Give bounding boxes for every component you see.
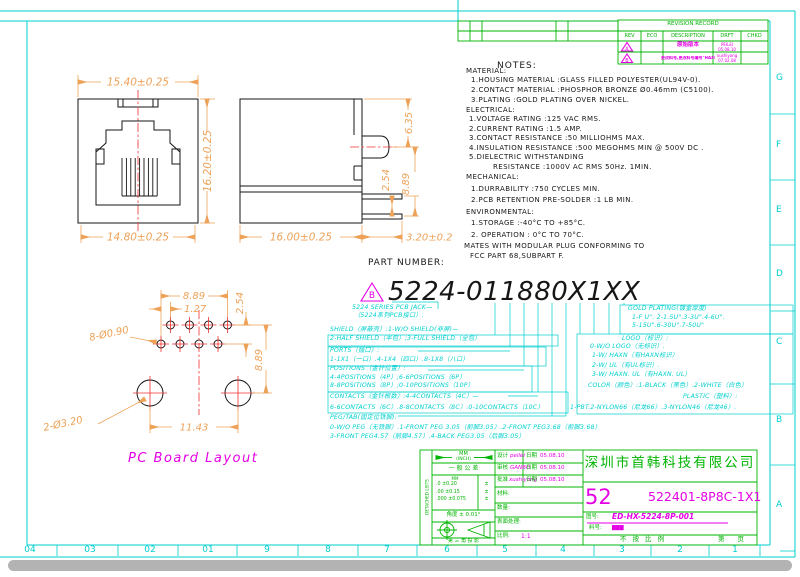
zone-col-03: 03 — [82, 546, 98, 555]
tb-company-name: 深圳市首韩科技有限公司 — [583, 457, 757, 471]
zone-col-04: 04 — [22, 546, 38, 555]
pn-breakdown-line: PEG/TAB(固定位铁脚): — [330, 415, 397, 421]
zone-col-1: 1 — [727, 546, 743, 555]
pn-breakdown-line: 5-15U".6-30U".7-50U" — [632, 323, 704, 329]
side-view-drawing — [240, 99, 402, 223]
notes-line: 2.CONTACT MATERIAL :PHOSPHOR BRONZE Ø0.4… — [471, 87, 714, 94]
pn-breakdown-line: 2-W/ UL（有UL标识）. — [592, 363, 660, 369]
dim-front-bottom: 14.80±0.25 — [107, 232, 170, 244]
notes-material-heading: MATERIAL: — [466, 68, 507, 75]
tb-material-label: 材料: — [497, 492, 510, 498]
dim-pcb-big-holes: 2-Ø3.20 — [42, 414, 84, 434]
zone-col-2: 2 — [672, 546, 688, 555]
rev-row-b-marker-letter: B — [625, 58, 629, 64]
dim-pcb-row: 2.54 — [235, 292, 246, 314]
dim-side-pitch: 2.54 — [381, 169, 392, 191]
notes-line: 2. OPERATION : 0°C TO 70°C. — [471, 232, 584, 239]
zone-row-f: F — [776, 141, 781, 150]
notes-line: 1.VOLTAGE RATING :125 VAC RMS. — [469, 116, 601, 123]
pn-breakdown-line: 3-FRONT PEG4.57（前脚4.57）.4-BACK PEG3.05（后… — [330, 434, 525, 440]
notes-line: 1.STORAGE :-40°C TO +85°C. — [471, 220, 585, 227]
dim-pcb-small-holes: 8-Ø0.90 — [88, 324, 130, 344]
revision-col-drft: DRFT — [713, 34, 741, 39]
rev-row-a-marker-letter: A — [625, 46, 629, 52]
revision-col-description: DESCRIPTION — [663, 34, 713, 39]
revision-row-b-date: 07.02.08 — [713, 59, 741, 63]
tb-scale-value: 1:1 — [521, 534, 531, 540]
pn-breakdown-line: LOGO（标识）: — [622, 336, 668, 342]
engineering-drawing-sheet: B A B — [0, 0, 800, 577]
tb-designed-name: peilei — [510, 454, 525, 460]
tb-tolerance-unit: MM — [434, 477, 476, 481]
dim-pcb-pitch: 1.27 — [184, 304, 207, 315]
pn-breakdown-line: 6-6CONTACTS（6C）.8-8CONTACTS（8C）.0-10CONT… — [330, 405, 544, 411]
tb-tolerance-row: .00 ±0.15 — [436, 491, 460, 496]
pn-breakdown-line: 5224 SERIES PCB JACK— — [352, 305, 433, 311]
pn-breakdown-line: （5224系列PCB接口）. — [354, 313, 424, 319]
revision-row-b-drafter: xushiyong — [713, 54, 741, 58]
pn-breakdown-line: GOLD PLATING(镀金厚度) — [628, 306, 707, 312]
tb-drawing-no-label: 图号: — [586, 515, 599, 521]
pn-breakdown-line: 1-F U". 2-1.5U".3-3U".4-6U". — [632, 315, 725, 321]
notes-line: MATES WITH MODULAR PLUG CONFORMING TO — [464, 243, 645, 250]
pn-breakdown-line: 1-1X1（一口）.4-1X4（四口）.8-1X8（八口） — [330, 357, 469, 363]
revision-row-a-drafter: PEILEI — [713, 43, 741, 47]
pn-breakdown-line: 8-8POSITIONS（8P）;0-10POSITIONS（10P） — [330, 383, 474, 389]
tb-approved-date: 05.08.10 — [540, 478, 565, 484]
tb-pm-mark: ± — [478, 483, 495, 488]
zone-col-7: 7 — [379, 546, 395, 555]
tb-size-code: 52 — [585, 487, 612, 508]
dim-side-width: 16.00±0.25 — [270, 232, 333, 244]
tb-material-no-label: 料号: — [589, 526, 602, 532]
title-block-strip-note: DETACHED LISTS — [425, 479, 430, 515]
pn-breakdown-line: 4-4POSITIONS（4P）;6-6POSITIONS（6P） — [330, 375, 466, 381]
tb-approved-date-label: 日期 — [526, 478, 537, 484]
zone-col-01: 01 — [200, 546, 216, 555]
notes-line: 5.DIELECTRIC WITHSTANDING — [469, 154, 584, 161]
zone-row-a: A — [776, 501, 782, 510]
dim-pcb-height: 8.89 — [254, 349, 265, 371]
tb-general-tolerance: 一 般 公 差 — [432, 466, 495, 472]
dim-pcb-width: 11.43 — [180, 423, 209, 434]
tb-designed-date: 05.08.10 — [540, 454, 565, 460]
tb-projection-label: 第 三 角 投 影 — [432, 539, 495, 544]
tb-approved-label: 批准 — [497, 478, 508, 484]
dim-pcb-span: 8.89 — [183, 291, 205, 302]
revision-row-a-date: 05.08.10 — [713, 48, 741, 52]
tb-finish-label: 表面处理: — [497, 520, 521, 526]
notes-electrical-heading: ELECTRICAL: — [466, 107, 515, 114]
dim-front-top: 15.40±0.25 — [107, 77, 170, 89]
zone-col-5: 5 — [497, 546, 513, 555]
pn-breakdown-line: CONTACTS（金针根数）:4-4CONTACTS（4C）— — [330, 394, 479, 400]
pn-breakdown-line: PORTS（插口）: — [330, 348, 379, 354]
revision-row-b-description: 更改料号,更改料号编号"HAXN" — [661, 56, 715, 64]
pn-breakdown-line: 2-HALF SHIELD（半包）;3-FULL SHIELD（全包） — [330, 336, 481, 342]
tb-quantity-label: 数量: — [497, 506, 510, 512]
dim-side-pin: 3.20±0.2 — [406, 233, 453, 244]
notes-line: 3.CONTACT RESISTANCE :50 MILLIOHMS MAX. — [469, 135, 645, 142]
zone-row-g: G — [776, 74, 783, 83]
tb-scale-label: 比例: — [497, 534, 510, 540]
tb-page-label: 第 页 — [718, 536, 744, 543]
horizontal-scrollbar[interactable] — [8, 560, 792, 571]
revision-col-chkd: CHKD — [741, 34, 768, 39]
tb-units-inch: (INCH) — [432, 458, 495, 463]
revision-row-a-description: 原始版本 — [663, 43, 713, 49]
notes-line: RESISTANCE :1000V AC RMS 50Hz. 1MIN. — [493, 164, 652, 171]
zone-row-e: E — [776, 206, 782, 215]
notes-line: FCC PART 68,SUBPART F. — [470, 253, 564, 260]
zone-row-c: C — [776, 338, 782, 347]
notes-line: 4.INSULATION RESISTANCE :500 MEGOHMS MIN… — [469, 145, 704, 152]
pn-breakdown-line: 0-W/O PEG（无铁脚）.1-FRONT PEG 3.05（前脚3.05）.… — [330, 425, 601, 431]
tb-not-to-scale: 不 按 比 例 — [583, 536, 703, 543]
pn-breakdown-line: 1-W/ HAXN（有HAXN标识） — [592, 353, 678, 359]
pn-breakdown-line: PLASTIC（塑料）: — [683, 394, 738, 400]
pn-breakdown-line: 0-W/O LOGO（无标识）. — [590, 344, 665, 350]
revision-col-rev: REV — [618, 34, 641, 39]
zone-col-9: 9 — [259, 546, 275, 555]
dim-side-height: 8.89 — [401, 173, 412, 195]
zone-row-b: B — [776, 416, 782, 425]
dim-front-height: 16.20±0.25 — [202, 130, 214, 193]
tb-angle-tolerance: 角度 ± 0.01° — [432, 513, 495, 519]
notes-line: 2.CURRENT RATING :1.5 AMP. — [469, 126, 582, 133]
revision-col-eco: ECO — [641, 34, 663, 39]
zone-col-6: 6 — [439, 546, 455, 555]
tb-part-number: 522401-8P8C-1X1 — [648, 491, 761, 504]
notes-line: 2.PCB RETENTION PRE-SOLDER :1 LB MIN. — [471, 197, 633, 204]
tb-drawing-no-value: ED-HX-5224-8P-001 — [612, 513, 694, 521]
zone-col-3: 3 — [614, 546, 630, 555]
notes-line: 1.DURRABILITY :750 CYCLES MIN. — [471, 186, 600, 193]
zone-col-4: 4 — [555, 546, 571, 555]
pn-rev-letter: B — [369, 291, 375, 301]
pn-breakdown-line: COLOR（颜色）:1-BLACK（黑色）.2-WHITE（白色） — [588, 383, 747, 389]
notes-line: 3.PLATING :GOLD PLATING OVER NICKEL. — [471, 97, 629, 104]
tb-designed-label: 设计 — [497, 454, 508, 460]
part-number-label: PART NUMBER: — [368, 259, 445, 268]
pn-breakdown-line: POSITIONS（金针位置）: — [330, 366, 406, 372]
tb-tolerance-row: .0 ±0.20 — [436, 483, 457, 488]
tb-material-no-value: ▇▇▇ — [612, 526, 624, 531]
dim-side-top: 6.35 — [404, 112, 415, 134]
pn-breakdown-line: SHIELD（屏蔽壳）:1-W/O SHIELD(非屏)— — [330, 327, 458, 333]
pcb-layout-caption: PC Board Layout — [128, 452, 258, 465]
tb-checked-date: 05.08.10 — [540, 466, 565, 472]
notes-environmental-heading: ENVIRONMENTAL: — [466, 209, 534, 216]
pn-breakdown-line: 3-W/ HAXN. UL（有HAXN. UL） — [592, 372, 691, 378]
zone-row-d: D — [776, 270, 783, 279]
tb-checked-label: 审核 — [497, 466, 508, 472]
tb-pm-mark: ± — [478, 491, 495, 496]
pn-breakdown-line: 1-PBT.2-NYLON66（尼龙66）.3-NYLON46（尼龙46）. — [570, 405, 736, 411]
zone-col-8: 8 — [320, 546, 336, 555]
tb-designed-date-label: 日期 — [526, 454, 537, 460]
notes-line: 1.HOUSING MATERIAL :GLASS FILLED POLYEST… — [471, 77, 701, 84]
part-number-value: 5224-011880X1XX — [388, 279, 640, 305]
revision-table-title: REVISION RECORD — [618, 22, 768, 28]
tb-tolerance-row: .000 ±0.075 — [436, 498, 466, 503]
tb-checked-date-label: 日期 — [526, 466, 537, 472]
notes-mechanical-heading: MECHANICAL: — [466, 174, 519, 181]
zone-col-02: 02 — [142, 546, 158, 555]
tb-pm-mark: ± — [478, 498, 495, 503]
